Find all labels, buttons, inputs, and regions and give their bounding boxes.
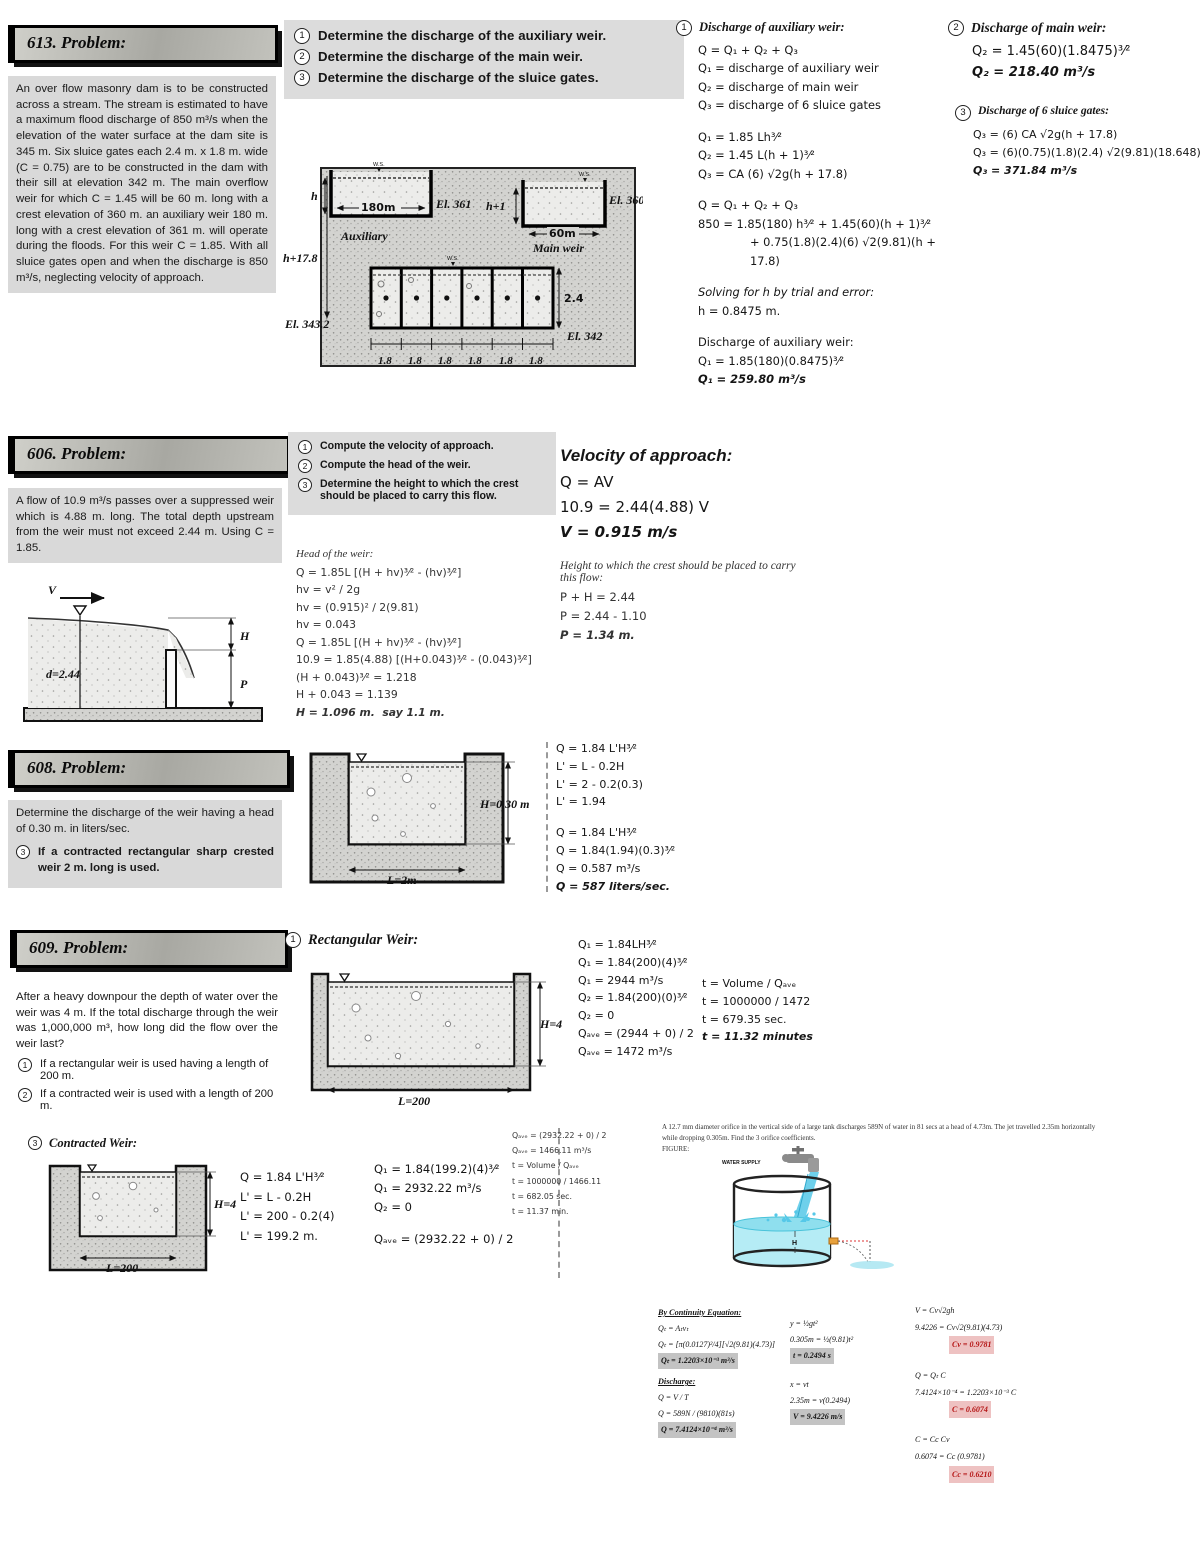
circled-number-icon: 2 [18,1088,32,1102]
circled-number-icon: 1 [285,932,301,948]
orifice-col1: By Continuity Equation: Qₜ = AₜvₜQₜ = [π… [658,1300,783,1438]
solution-lines: Q = AV10.9 = 2.44(4.88) VV = 0.915 m/s [560,470,860,544]
gate-width-label: 1.8 [408,355,422,367]
equation-line: Qₜ = Aₜvₜ [658,1321,783,1337]
el-361-label: El. 361 [435,197,471,211]
length-dim-label: L=2m [386,873,417,887]
equation-line: Qₐᵥₑ = (2932.22 + 0) / 2 [374,1230,539,1249]
contracted-weir-heading: 3 Contracted Weir: [28,1136,137,1151]
rectangular-weir-heading: 1 Rectangular Weir: [285,932,418,949]
head-dim-label: H=4 [539,1017,562,1031]
equation-line: L' = 200 - 0.2(4) [240,1207,372,1227]
solution-lines: Q₃ = (6) CA √2g(h + 17.8)Q₃ = (6)(0.75)(… [955,126,1200,179]
equation-line: (H + 0.043)³⁄² = 1.218 [296,669,554,686]
equation-line: 7.4124×10⁻⁴ = 1.2203×10⁻³ C [915,1384,1110,1401]
dim-h: h [311,189,318,203]
equation-line: t = 682.05 sec. [512,1189,642,1204]
equation-line: Qₜ = [π(0.0127)²/4][√2(9.81)(4.73)] [658,1337,783,1353]
equation-line: Q = Q₁ + Q₂ + Q₃ [698,196,944,214]
solution-606-mid: Head of the weir: Q = 1.85L [(H + hv)³⁄²… [296,548,554,721]
equation-line: Q = 1.85L [(H + hv)³⁄² - (hv)³⁄²] [296,564,554,581]
question-item: 1 Determine the discharge of the auxilia… [294,28,674,44]
circled-number-icon: 3 [298,478,312,492]
gate-width-label: 1.8 [499,355,513,367]
solution-lines: Q = V / TQ = 589N / (9810)(81s)Q = 7.412… [658,1390,783,1438]
problem-608-banner: 608. Problem: [8,750,290,788]
water-surface-marker-icon [88,1165,96,1171]
water-surface-label: W.S. [447,256,459,262]
main-weir-label: Main weir [532,241,584,255]
equation-line: Q₂ = 1.45(60)(1.8475)³⁄² [972,41,1198,62]
equation-line: Q = 1.84(1.94)(0.3)³⁄² [556,842,726,860]
gate-width-label: 1.8 [468,355,482,367]
circled-number-icon: 1 [18,1058,32,1072]
equation-line: 10.9 = 1.85(4.88) [(H+0.043)³⁄² - (0.043… [296,651,554,668]
question-item: 1 Compute the velocity of approach. [298,440,546,454]
water-surface-marker-icon [357,754,366,761]
equation-line: Q₁ = 1.84(200)(4)³⁄² [578,954,728,972]
equation-line: Qₐᵥₑ = (2932.22 + 0) / 2 [512,1128,642,1143]
solution-613-part3: 3 Discharge of 6 sluice gates: Q₃ = (6) … [955,105,1200,179]
gate-width-label: 1.8 [378,355,392,367]
velocity-label: V [48,583,57,597]
question-item: 2 If a contracted weir is used with a le… [18,1088,276,1112]
equation-line: P = 2.44 - 1.10 [560,607,860,626]
solution-heading: Height to which the crest should be plac… [560,560,810,584]
equation-line: L' = L - 0.2H [240,1188,372,1208]
equation-line: L' = 1.94 [556,793,726,811]
equation-line: t = 1000000 / 1472 [702,993,832,1011]
question-item: 1 If a rectangular weir is used having a… [18,1058,276,1082]
question-item: 3 Determine the discharge of the sluice … [294,70,674,86]
equation-line: Discharge of auxiliary weir: [698,333,944,351]
equation-line: Q₁ = discharge of auxiliary weir [698,59,944,77]
problem-609-statement: After a heavy downpour the depth of wate… [8,984,286,1059]
equation-line: Q₃ = (6)(0.75)(1.8)(2.4) √2(9.81)(18.648… [973,144,1200,162]
dam-cross-section-diagram: W.S. h 180m El. 361 Auxiliary W.S. h+1 6… [283,156,643,378]
equation-line: Cv = 0.9781 [949,1336,994,1353]
column-divider [546,742,548,892]
equation-line: Q₃ = discharge of 6 sluice gates [698,96,944,114]
equation-line: t = 0.2494 s [790,1348,834,1364]
equation-line: 0.305m = ½(9.81)t² [790,1332,925,1348]
equation-line: 2.35m = v(0.2494) [790,1393,925,1409]
length-dim-label: L=200 [105,1261,138,1275]
solution-608-lines: Q = 1.84 L'H³⁄²L' = L - 0.2HL' = 2 - 0.2… [556,740,726,896]
equation-line: P = 1.34 m. [560,626,860,645]
problem-606-statement: A flow of 10.9 m³/s passes over a suppre… [8,488,282,563]
equation-line: Cc = 0.6210 [949,1466,994,1483]
equation-line: Q₁ = 259.80 m³/s [698,370,944,388]
equation-line: L' = 199.2 m. [240,1227,372,1247]
equation-line: 10.9 = 2.44(4.88) V [560,495,860,520]
equation-line: Q₁ = 1.84LH³⁄² [578,936,728,954]
equation-line: x = vt [790,1377,925,1393]
equation-line: Solving for h by trial and error: [698,283,944,301]
solution-heading: Head of the weir: [296,548,554,560]
solution-613-part2: 2 Discharge of main weir: Q₂ = 1.45(60)(… [948,20,1198,83]
dim-h-17-8: h+17.8 [283,251,318,265]
circled-number-icon: 1 [298,440,312,454]
circled-number-icon: 3 [28,1136,42,1150]
circled-number-icon: 3 [294,70,310,86]
document-page: 613. Problem: An over flow masonry dam i… [0,0,1200,1553]
solution-lines: Q = 1.85L [(H + hv)³⁄² - (hv)³⁄²]hv = v²… [296,564,554,721]
el-343-2-label: El. 343.2 [284,317,329,331]
question-item: 2 Determine the discharge of the main we… [294,49,674,65]
solution-lines: P + H = 2.44P = 2.44 - 1.10P = 1.34 m. [560,588,860,644]
length-dim-label: L=200 [397,1094,430,1108]
equation-line: Q = 7.4124×10⁻⁴ m³/s [658,1422,736,1438]
water-surface-label: W.S. [579,172,591,178]
equation-line: P + H = 2.44 [560,588,860,607]
equation-line: Q = 1.85L [(H + hv)³⁄² - (hv)³⁄²] [296,634,554,651]
continuity-heading: By Continuity Equation: [658,1308,783,1317]
discharge-heading: Discharge: [658,1377,783,1386]
equation-line: hv = 0.043 [296,616,554,633]
problem-609-title: 609. Problem: [29,938,128,957]
solution-heading: 2 Discharge of main weir: [948,20,1198,36]
equation-line: Q₂ = discharge of main weir [698,78,944,96]
solution-heading: 1 Discharge of auxiliary weir: [676,20,944,36]
el-342-label: El. 342 [566,329,602,343]
equation-line: Q = 589N / (9810)(81s) [658,1406,783,1422]
problem-613-banner: 613. Problem: [8,25,278,63]
orifice-col2: y = ½gt²0.305m = ½(9.81)t²t = 0.2494 sx … [790,1316,925,1425]
equation-line: Q₁ = 1.85 Lh³⁄² [698,128,944,146]
orifice-jet [829,1238,894,1269]
solution-heading: Velocity of approach: [560,446,860,466]
solution-613-part1: 1 Discharge of auxiliary weir: Q = Q₁ + … [676,20,944,389]
equation-line: Q₁ = 1.85(180)(0.8475)³⁄² [698,352,944,370]
water-surface-marker-icon [340,974,349,981]
equation-line: V = Cv√2gh [915,1302,1110,1319]
equation-line: V = 0.915 m/s [560,520,860,545]
solution-lines: Q₂ = 1.45(60)(1.8475)³⁄²Q₂ = 218.40 m³/s [948,41,1198,83]
equation-line: H + 0.043 = 1.139 [296,686,554,703]
equation-line: y = ½gt² [790,1316,925,1332]
equation-line: Q = 1.84 L'H³⁄² [556,740,726,758]
equation-line: t = 679.35 sec. [702,1011,832,1029]
problem-606-title: 606. Problem: [27,444,126,463]
equation-line: + 0.75(1.8)(2.4)(6) √2(9.81)(h + 17.8) [750,233,944,270]
question-item: 2 Compute the head of the weir. [298,459,546,473]
equation-line: Q₃ = 371.84 m³/s [973,162,1200,180]
circled-number-icon: 3 [16,845,30,859]
equation-line: Q = AV [560,470,860,495]
suppressed-weir-side-view-diagram: V d=2.44 H P [18,578,268,728]
problem-613-statement: An over flow masonry dam is to be constr… [8,76,276,293]
dim-180m: 180m [361,201,395,214]
head-label: H [239,629,250,643]
equation-line: t = Volume / Qₐᵥₑ [702,975,832,993]
solution-606-right: Velocity of approach: Q = AV10.9 = 2.44(… [560,446,860,644]
problem-606-banner: 606. Problem: [8,436,290,474]
water-supply-label: WATER SUPPLY [722,1160,761,1166]
question-item: 3 If a contracted rectangular sharp cres… [16,845,274,876]
equation-line: t = Volume / Qₐᵥₑ [512,1158,642,1173]
equation-line: V = 9.4226 m/s [790,1409,845,1425]
head-dim-label: H=0.30 m [479,797,530,811]
equation-line: L' = L - 0.2H [556,758,726,776]
equation-line: t = 1000000 / 1466.11 [512,1174,642,1189]
equation-line: Qₐᵥₑ = 1466.11 m³/s [512,1143,642,1158]
circled-number-icon: 2 [948,20,964,36]
problem-609-banner: 609. Problem: [10,930,288,968]
equation-line: Q = 0.587 m³/s [556,860,726,878]
equation-line: h = 0.8475 m. [698,302,944,320]
equation-line: Q₂ = 218.40 m³/s [972,62,1198,83]
dim-h-plus-1: h+1 [486,199,506,213]
equation-line: 850 = 1.85(180) h³⁄² + 1.45(60)(h + 1)³⁄… [698,215,944,233]
equation-line: t = 11.32 minutes [702,1028,832,1046]
equation-line: Q₃ = (6) CA √2g(h + 17.8) [973,126,1200,144]
gate-width-label: 1.8 [529,355,543,367]
auxiliary-label: Auxiliary [340,229,388,243]
solution-lines: Q = Q₁ + Q₂ + Q₃Q₁ = discharge of auxili… [676,41,944,389]
equation-line: Qₜ = 1.2203×10⁻³ m³/s [658,1353,738,1369]
depth-label: d=2.44 [46,667,80,681]
equation-line: hv = v² / 2g [296,581,554,598]
solution-609-colB: t = Volume / Qₐᵥₑt = 1000000 / 1472t = 6… [702,975,832,1046]
solution-609c-colC: Qₐᵥₑ = (2932.22 + 0) / 2Qₐᵥₑ = 1466.11 m… [512,1128,642,1219]
water-surface-marker-icon [74,606,86,615]
circled-number-icon: 2 [294,49,310,65]
solution-heading: 3 Discharge of 6 sluice gates: [955,105,1200,121]
equation-line: Q = 1.84 L'H³⁄² [240,1168,372,1188]
problem-613-questions: 1 Determine the discharge of the auxilia… [284,20,684,99]
equation-line: C = Cc Cv [915,1431,1110,1448]
equation-line: L' = 2 - 0.2(0.3) [556,776,726,794]
circled-number-icon: 3 [955,105,971,121]
equation-line: hv = (0.915)² / 2(9.81) [296,599,554,616]
contracted-weir-diagram-2: H=4 L=200 [38,1158,250,1286]
question-item: 3 Determine the height to which the cres… [298,478,546,502]
problem-608-title: 608. Problem: [27,758,126,777]
contracted-weir-diagram: H=0.30 m L=2m [283,746,548,896]
problem-609-questions: 1 If a rectangular weir is used having a… [18,1058,276,1117]
circled-number-icon: 1 [294,28,310,44]
faucet-icon [782,1146,819,1172]
head-label: H [792,1240,797,1247]
equation-line: 0.6074 = Cc (0.9781) [915,1448,1110,1465]
problem-613-title: 613. Problem: [27,33,126,52]
equation-line: Q = Qₜ C [915,1367,1110,1384]
solution-lines: Qₜ = AₜvₜQₜ = [π(0.0127)²/4][√2(9.81)(4.… [658,1321,783,1369]
equation-line: Q = 587 liters/sec. [556,878,726,896]
equation-line: H = 1.096 m. say 1.1 m. [296,704,554,721]
problem-608-statement: Determine the discharge of the weir havi… [8,800,282,888]
water-surface-label: W.S. [373,162,385,168]
equation-line: 9.4226 = Cv√2(9.81)(4.73) [915,1319,1110,1336]
dim-60m: 60m [549,227,576,240]
equation-line: Q₃ = CA (6) √2g(h + 17.8) [698,165,944,183]
problem-606-questions: 1 Compute the velocity of approach. 2 Co… [288,432,556,515]
tank-outline [734,1176,830,1266]
solution-609c-colA: Q = 1.84 L'H³⁄²L' = L - 0.2HL' = 200 - 0… [240,1168,372,1246]
equation-line: Q = 1.84 L'H³⁄² [556,824,726,842]
circled-number-icon: 1 [676,20,692,36]
el-360-label: El. 360 [608,193,643,207]
circled-number-icon: 2 [298,459,312,473]
equation-line: Q₂ = 1.45 L(h + 1)³⁄² [698,146,944,164]
gate-width-label: 1.8 [438,355,452,367]
orifice-col3: V = Cv√2gh9.4226 = Cv√2(9.81)(4.73)Cv = … [915,1302,1110,1483]
dim-2-4: 2.4 [564,292,584,305]
puddle-icon [850,1261,894,1269]
equation-line: t = 11.37 min. [512,1204,642,1219]
head-dim-label: H=4 [213,1197,236,1211]
equation-line: Q = V / T [658,1390,783,1406]
rectangular-weir-diagram: H=4 L=200 [298,968,570,1110]
equation-line: Q = Q₁ + Q₂ + Q₃ [698,41,944,59]
tank-figure: WATER SUPPLY H [700,1146,910,1284]
equation-line: C = 0.6074 [949,1401,991,1418]
crest-height-label: P [240,677,248,691]
